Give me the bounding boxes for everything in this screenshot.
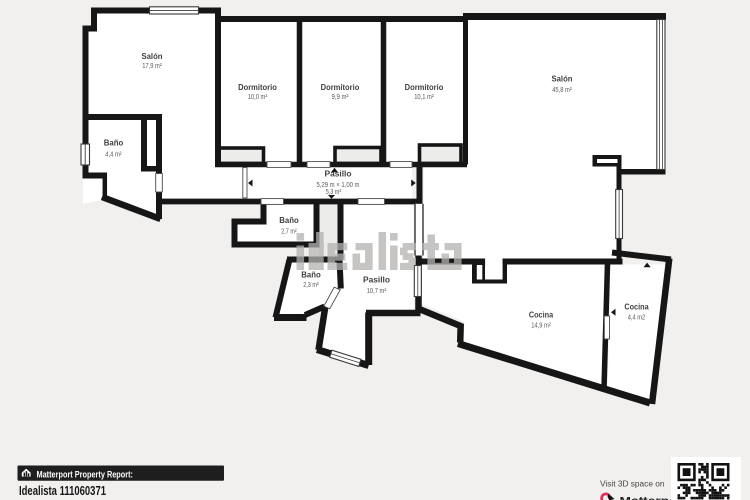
svg-text:17,9 m²: 17,9 m² xyxy=(142,63,162,70)
svg-text:Dormitorio: Dormitorio xyxy=(321,82,360,92)
svg-text:Visit 3D space on: Visit 3D space on xyxy=(600,480,665,489)
svg-text:Cocina: Cocina xyxy=(624,302,648,312)
svg-text:9,9 m²: 9,9 m² xyxy=(332,94,350,101)
svg-text:10,7 m²: 10,7 m² xyxy=(367,288,387,295)
svg-text:5,3 m²: 5,3 m² xyxy=(326,189,342,196)
svg-text:Baño: Baño xyxy=(104,138,124,148)
svg-text:Salón: Salón xyxy=(552,74,573,84)
svg-text:2,3 m²: 2,3 m² xyxy=(303,282,319,289)
svg-text:Dormitorio: Dormitorio xyxy=(238,82,277,92)
svg-text:Baño: Baño xyxy=(279,215,299,225)
svg-text:10,1 m²: 10,1 m² xyxy=(414,94,434,101)
svg-text:Idealista 111060371: Idealista 111060371 xyxy=(19,484,106,498)
svg-text:5,29 m × 1,00 m: 5,29 m × 1,00 m xyxy=(317,182,360,189)
svg-text:45,8 m²: 45,8 m² xyxy=(552,87,572,94)
svg-text:Dormitorio: Dormitorio xyxy=(405,82,444,92)
svg-text:Pasillo: Pasillo xyxy=(363,275,390,285)
svg-text:10,0 m²: 10,0 m² xyxy=(248,94,268,101)
svg-text:Salón: Salón xyxy=(142,51,163,61)
svg-text:4,4 m²: 4,4 m² xyxy=(105,152,122,159)
svg-text:4,4 m2: 4,4 m2 xyxy=(628,315,646,322)
svg-text:14,9 m²: 14,9 m² xyxy=(531,323,551,330)
svg-text:Cocina: Cocina xyxy=(529,310,553,320)
svg-text:Baño: Baño xyxy=(301,270,321,280)
svg-text:Matterport Property Report:: Matterport Property Report: xyxy=(37,469,134,479)
svg-text:Pasillo: Pasillo xyxy=(325,169,352,179)
svg-text:2,7 m²: 2,7 m² xyxy=(281,229,297,236)
